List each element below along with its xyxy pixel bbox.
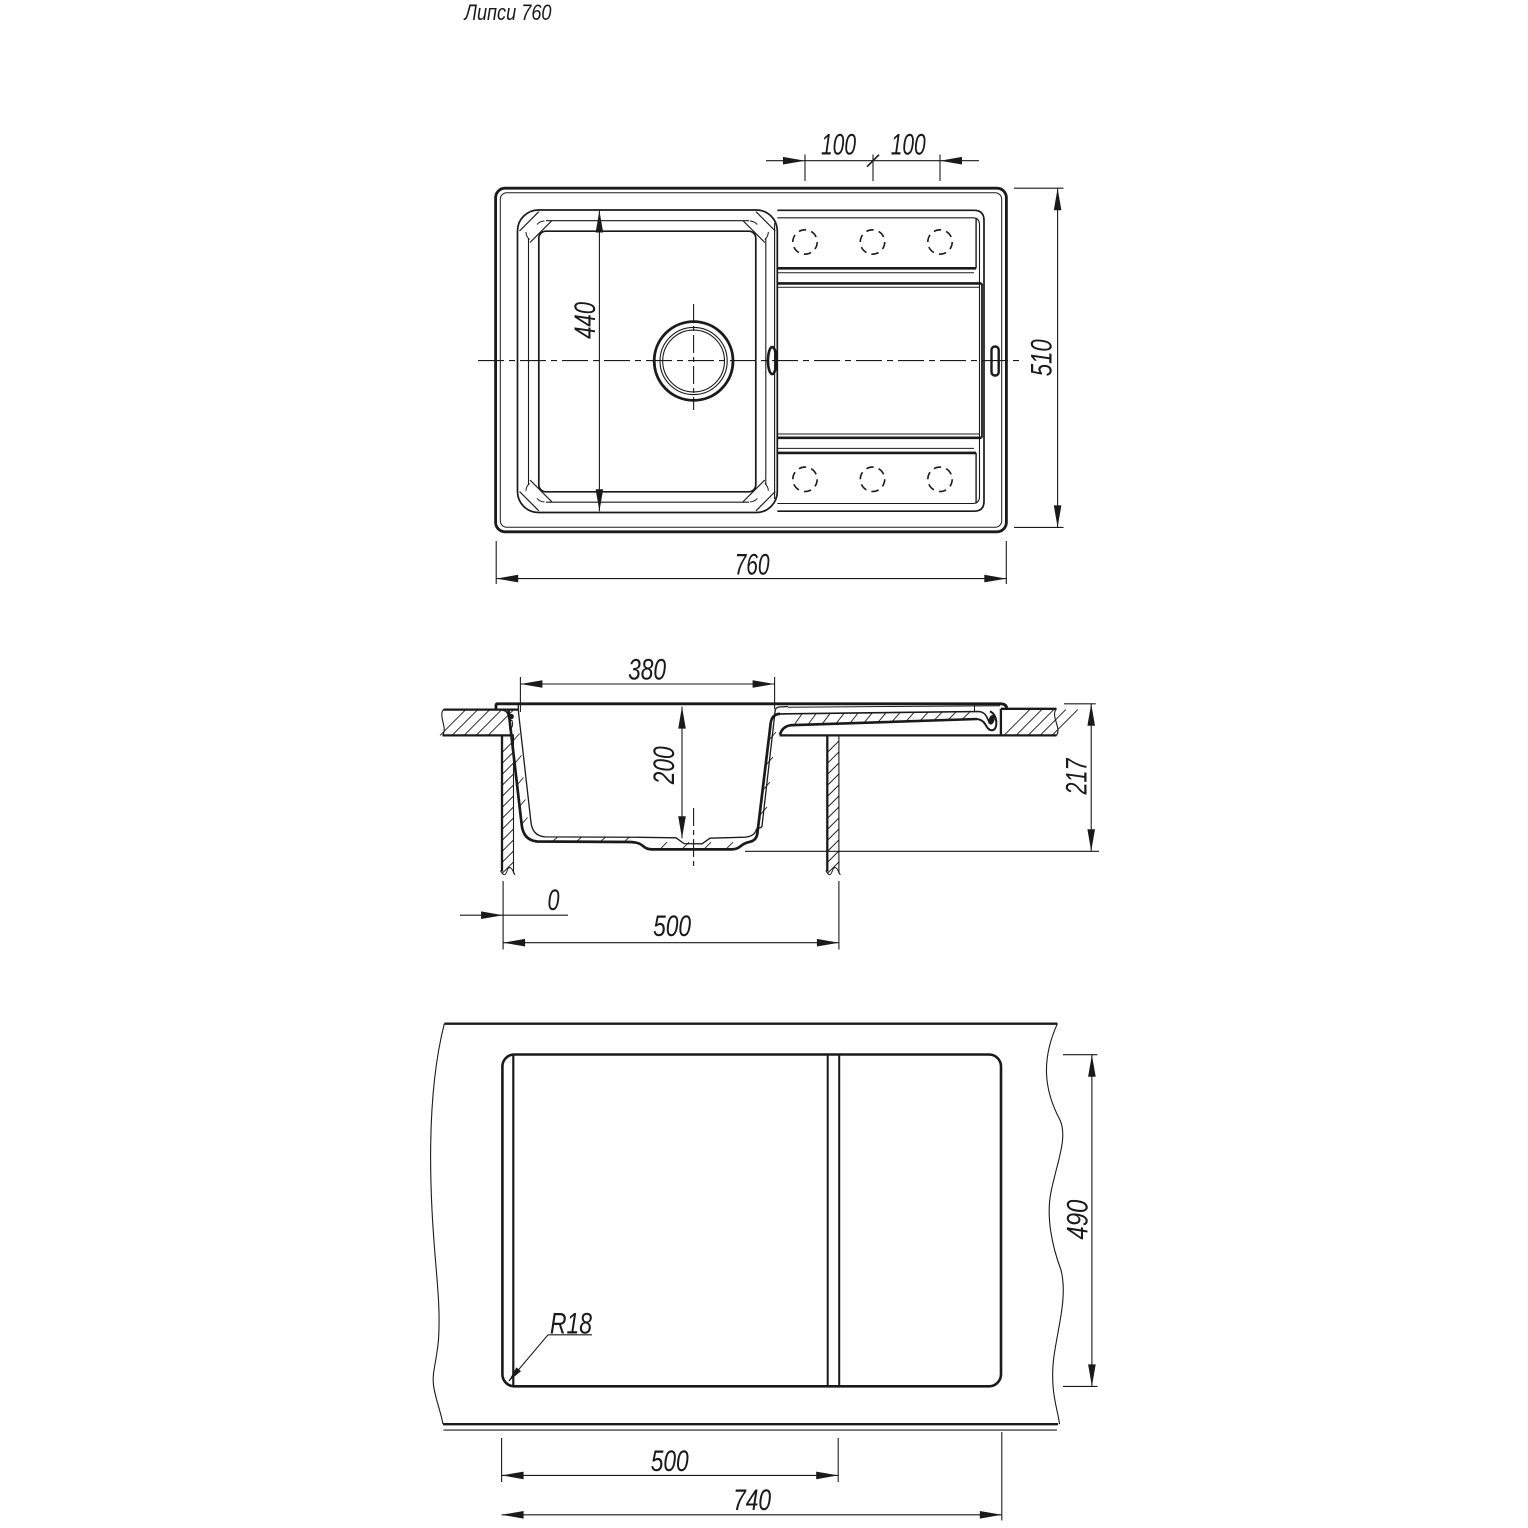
svg-text:0: 0 <box>548 884 560 917</box>
svg-text:510: 510 <box>1026 339 1059 376</box>
svg-text:760: 760 <box>735 548 770 581</box>
svg-text:R18: R18 <box>550 1308 592 1341</box>
svg-text:500: 500 <box>651 1445 689 1478</box>
svg-text:217: 217 <box>1061 758 1094 796</box>
svg-text:100: 100 <box>821 129 856 162</box>
svg-text:200: 200 <box>648 746 681 785</box>
svg-text:Липси 760: Липси 760 <box>463 0 552 25</box>
svg-text:380: 380 <box>628 654 666 687</box>
svg-text:100: 100 <box>891 129 926 162</box>
svg-text:740: 740 <box>733 1484 771 1517</box>
svg-text:490: 490 <box>1062 1199 1095 1239</box>
svg-text:500: 500 <box>653 910 691 943</box>
svg-text:440: 440 <box>569 302 602 339</box>
